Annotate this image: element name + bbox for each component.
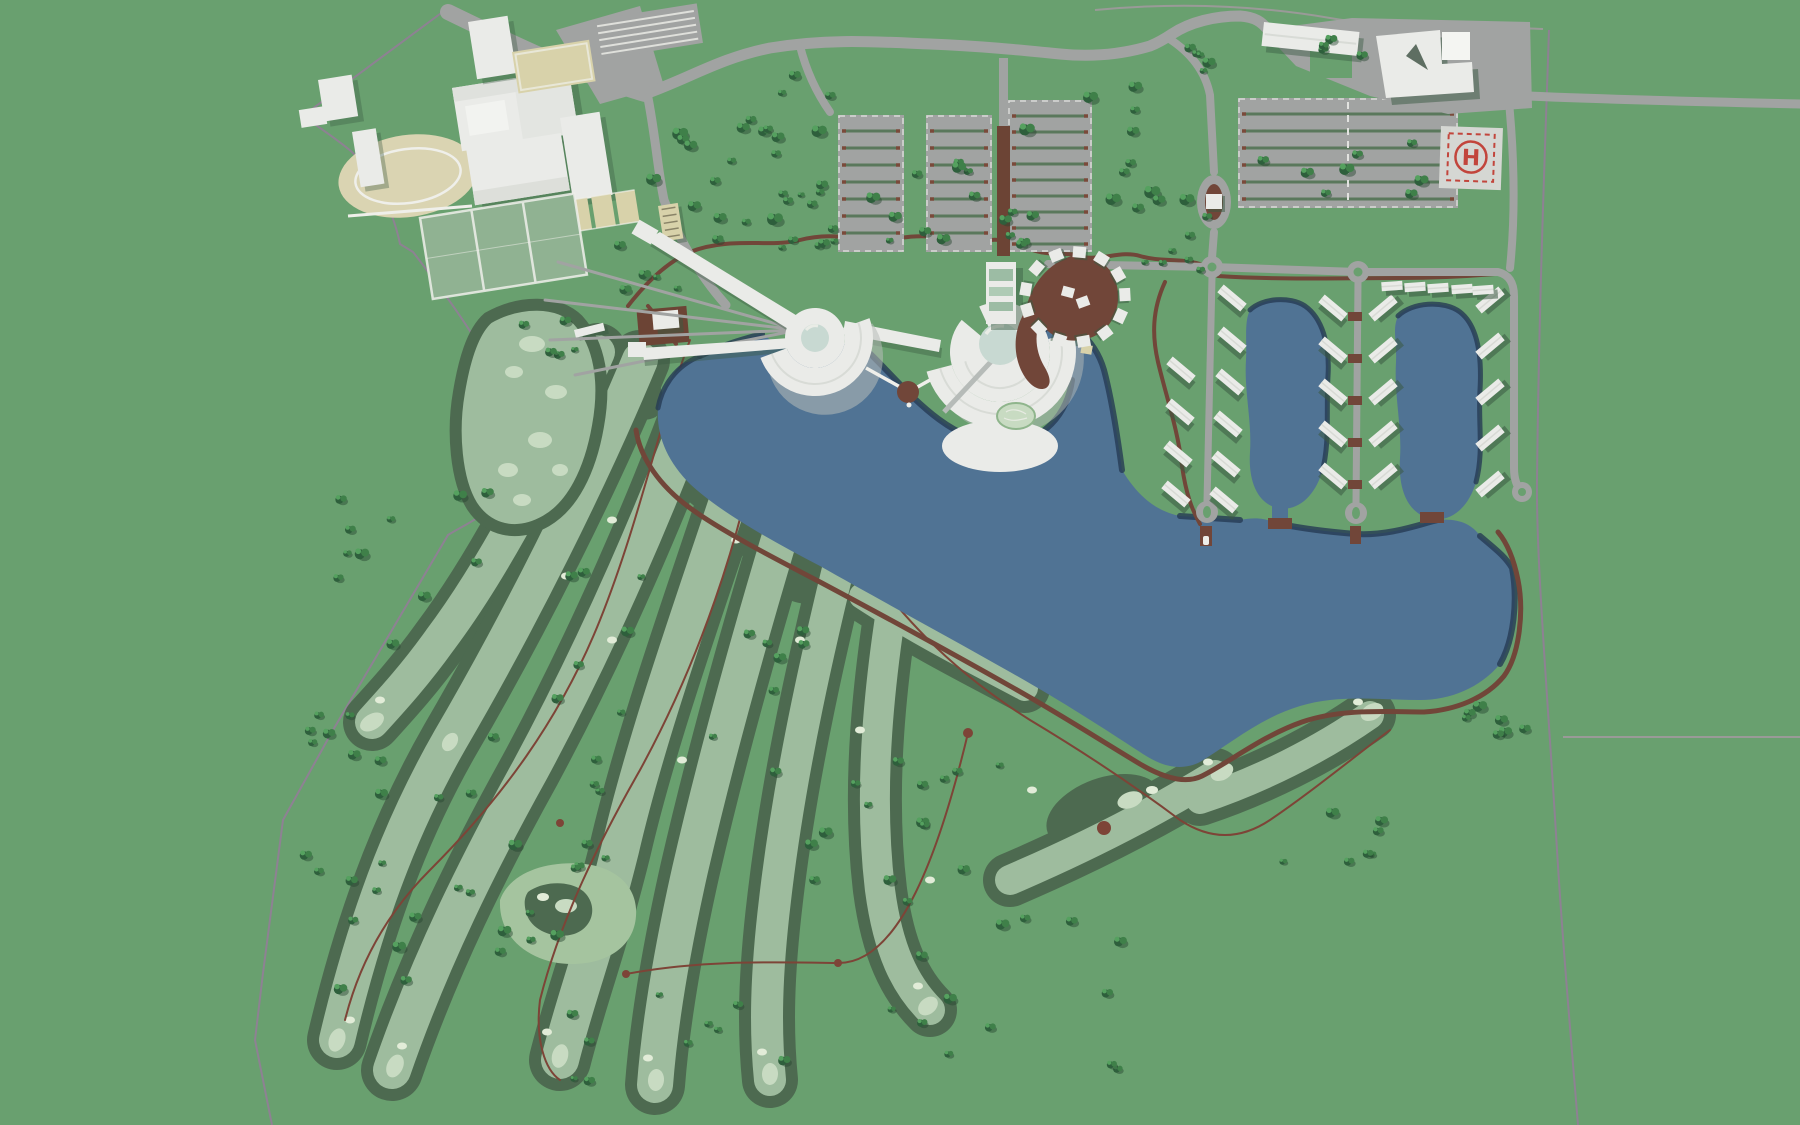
helipad-label: H: [1461, 146, 1480, 172]
masterplan-svg: H: [0, 0, 1800, 1125]
lagoon-1: [1246, 300, 1329, 509]
boat-pier-1: [1200, 526, 1212, 546]
parking-lot-3: [1008, 100, 1092, 252]
site-plan: H: [0, 0, 1800, 1125]
gatehouse: [986, 262, 1023, 330]
cottage: [1019, 280, 1034, 297]
west-dome: [801, 324, 829, 352]
maintenance-hall: [1376, 30, 1480, 105]
cottage: [1072, 246, 1088, 260]
bridge-1: [1268, 518, 1292, 529]
roundabout-2: [1347, 261, 1369, 283]
cottage: [1074, 333, 1091, 348]
entrance-gatehouse: [1206, 194, 1222, 209]
boat-pier-2: [1350, 526, 1361, 544]
roundabout-3: [1512, 482, 1532, 502]
bridge-2: [1420, 512, 1444, 523]
boardwalk-link: [999, 58, 1008, 128]
garden-island: [997, 403, 1035, 429]
entrance-roundabout: [1197, 175, 1231, 229]
parking-lot-1: [838, 115, 904, 252]
roundabout-1: [1201, 256, 1223, 278]
villa-road-1: [1207, 277, 1212, 502]
parking-lot-2: [926, 115, 992, 252]
lagoon-2: [1395, 304, 1480, 519]
parking-lot-4: [1238, 98, 1458, 208]
culdesac-2: [1345, 502, 1367, 524]
helipad: H: [1439, 126, 1503, 190]
